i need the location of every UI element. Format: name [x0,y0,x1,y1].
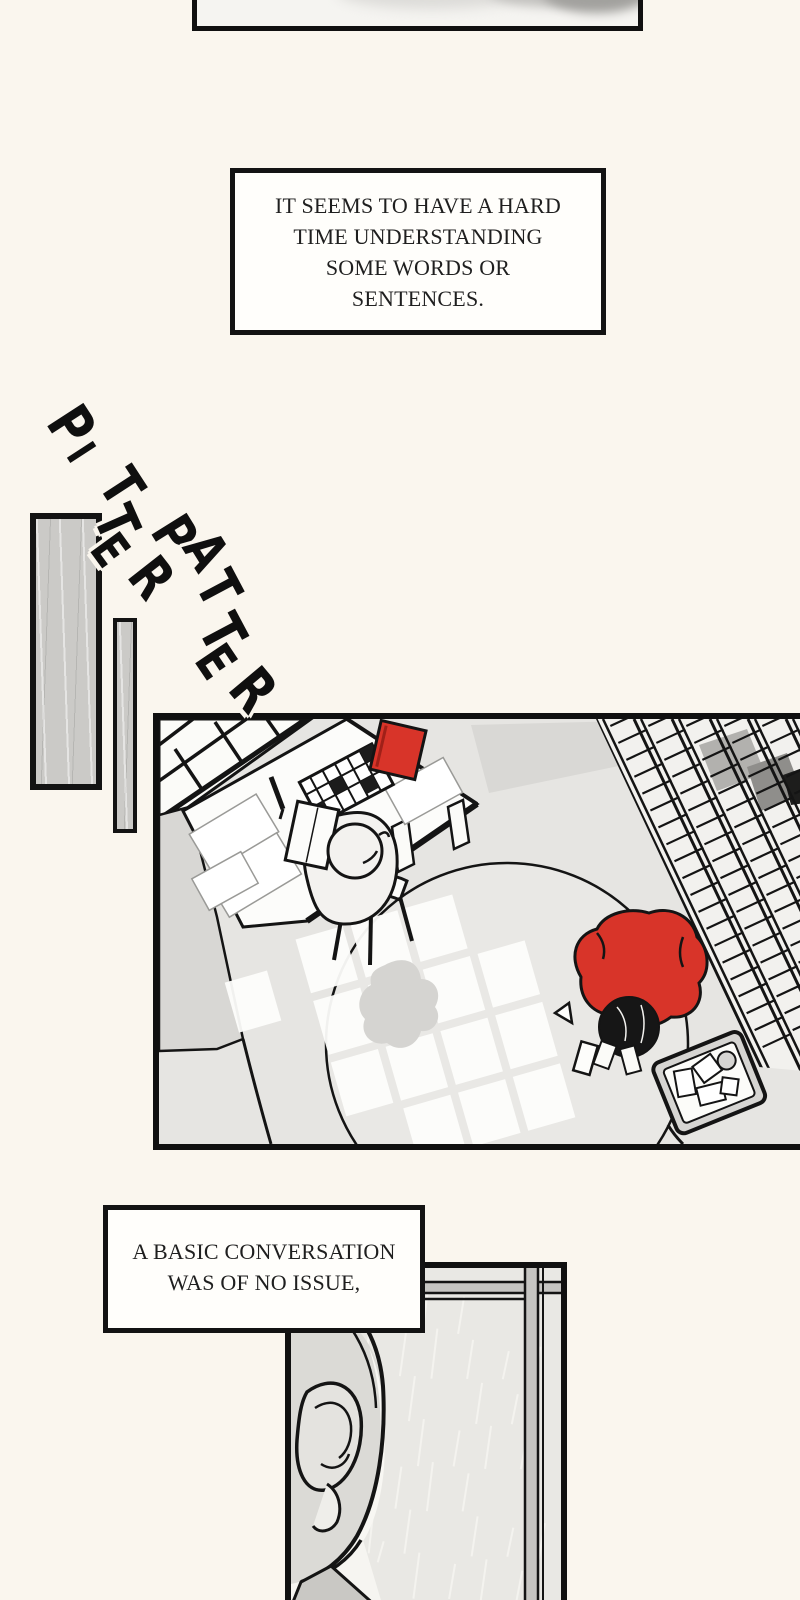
caption-line: SENTENCES. [235,283,601,314]
sfx-letter: I [56,435,103,472]
caption-line: SOME WORDS OR [235,252,601,283]
sfx-letter: P [137,504,210,566]
head [328,824,382,878]
wash-blob-light [337,0,527,9]
caption-box-2: A BASIC CONVERSATION WAS OF NO ISSUE, [103,1205,425,1333]
caption-box-1: IT SEEMS TO HAVE A HARD TIME UNDERSTANDI… [230,168,606,335]
caption-line: A BASIC CONVERSATION [108,1236,420,1267]
door-plank-small [113,618,137,833]
caption-line: IT SEEMS TO HAVE A HARD [235,190,601,221]
caption-line: TIME UNDERSTANDING [235,221,601,252]
door-plank-large [30,513,102,790]
red-book [370,720,426,779]
room-scene [159,719,800,1144]
panel-top-partial [192,0,643,31]
comic-page: IT SEEMS TO HAVE A HARD TIME UNDERSTANDI… [0,0,800,1600]
sfx-letter: A [170,520,241,582]
sfx-letter: T [85,456,157,517]
sfx-letter: T [182,560,254,618]
sfx-letter: E [182,634,247,691]
caption-line: WAS OF NO ISSUE, [108,1267,420,1298]
sfx-letter: P [33,393,109,459]
panel-room-overhead [153,713,800,1150]
sfx-letter: T [184,603,259,663]
wash-blob-dark [542,0,643,13]
sfx-letter: R [114,544,187,611]
